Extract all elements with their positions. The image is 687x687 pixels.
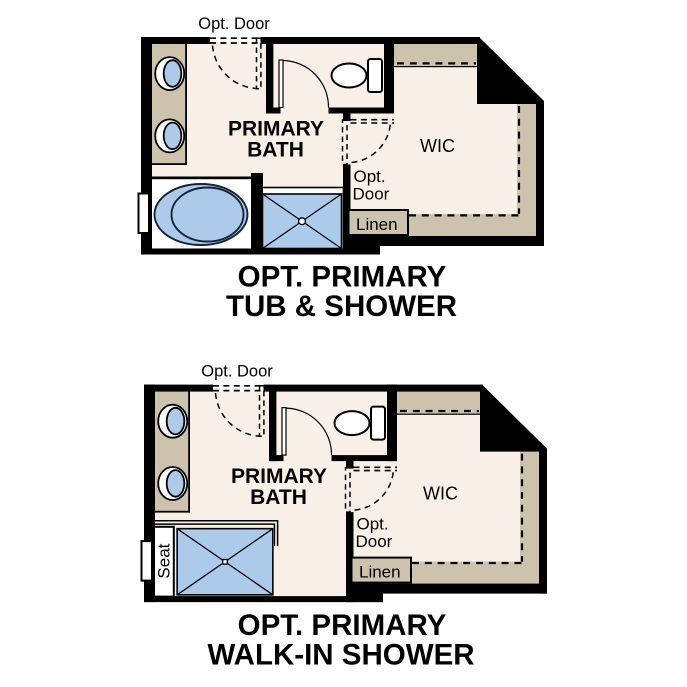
svg-text:PRIMARY: PRIMARY [228,118,324,141]
svg-text:BATH: BATH [247,139,304,162]
svg-text:WIC: WIC [420,136,455,156]
svg-text:PRIMARY: PRIMARY [231,465,327,488]
svg-text:Seat: Seat [155,543,174,578]
svg-text:TUB & SHOWER: TUB & SHOWER [226,290,457,323]
svg-text:Door: Door [353,185,390,204]
svg-text:Linen: Linen [356,215,398,234]
svg-text:WALK-IN SHOWER: WALK-IN SHOWER [207,639,474,672]
svg-text:BATH: BATH [250,486,307,509]
svg-text:OPT. PRIMARY: OPT. PRIMARY [238,609,447,642]
svg-text:Linen: Linen [359,563,401,582]
svg-text:Door: Door [356,532,393,551]
svg-text:Opt. Door: Opt. Door [198,15,270,33]
svg-text:WIC: WIC [423,484,458,504]
svg-text:OPT. PRIMARY: OPT. PRIMARY [238,261,447,294]
svg-text:Opt.: Opt. [357,515,389,534]
svg-text:Opt. Door: Opt. Door [201,363,273,381]
svg-text:Opt.: Opt. [354,167,386,186]
